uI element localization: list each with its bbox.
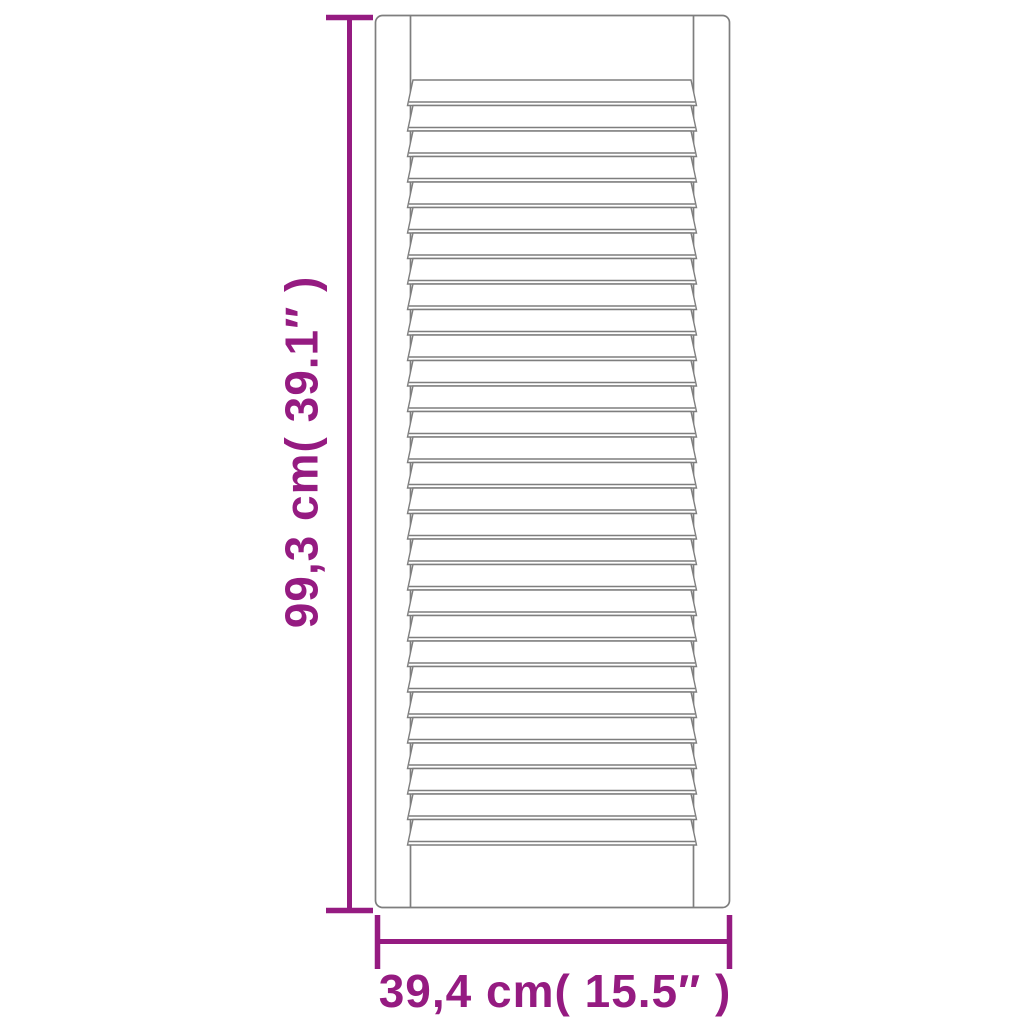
diagram-svg: 99,3 cm( 39.1″ ) 39,4 cm( 15.5″ ) [0,0,1024,1024]
door-panel [376,16,730,908]
height-dimension: 99,3 cm( 39.1″ ) [276,17,374,911]
width-dimension-label: 39,4 cm( 15.5″ ) [379,965,732,1017]
width-dimension: 39,4 cm( 15.5″ ) [377,915,731,1017]
louver-slats [408,80,697,845]
product-dimension-diagram: 99,3 cm( 39.1″ ) 39,4 cm( 15.5″ ) [0,0,1024,1024]
height-dimension-label: 99,3 cm( 39.1″ ) [276,276,328,629]
